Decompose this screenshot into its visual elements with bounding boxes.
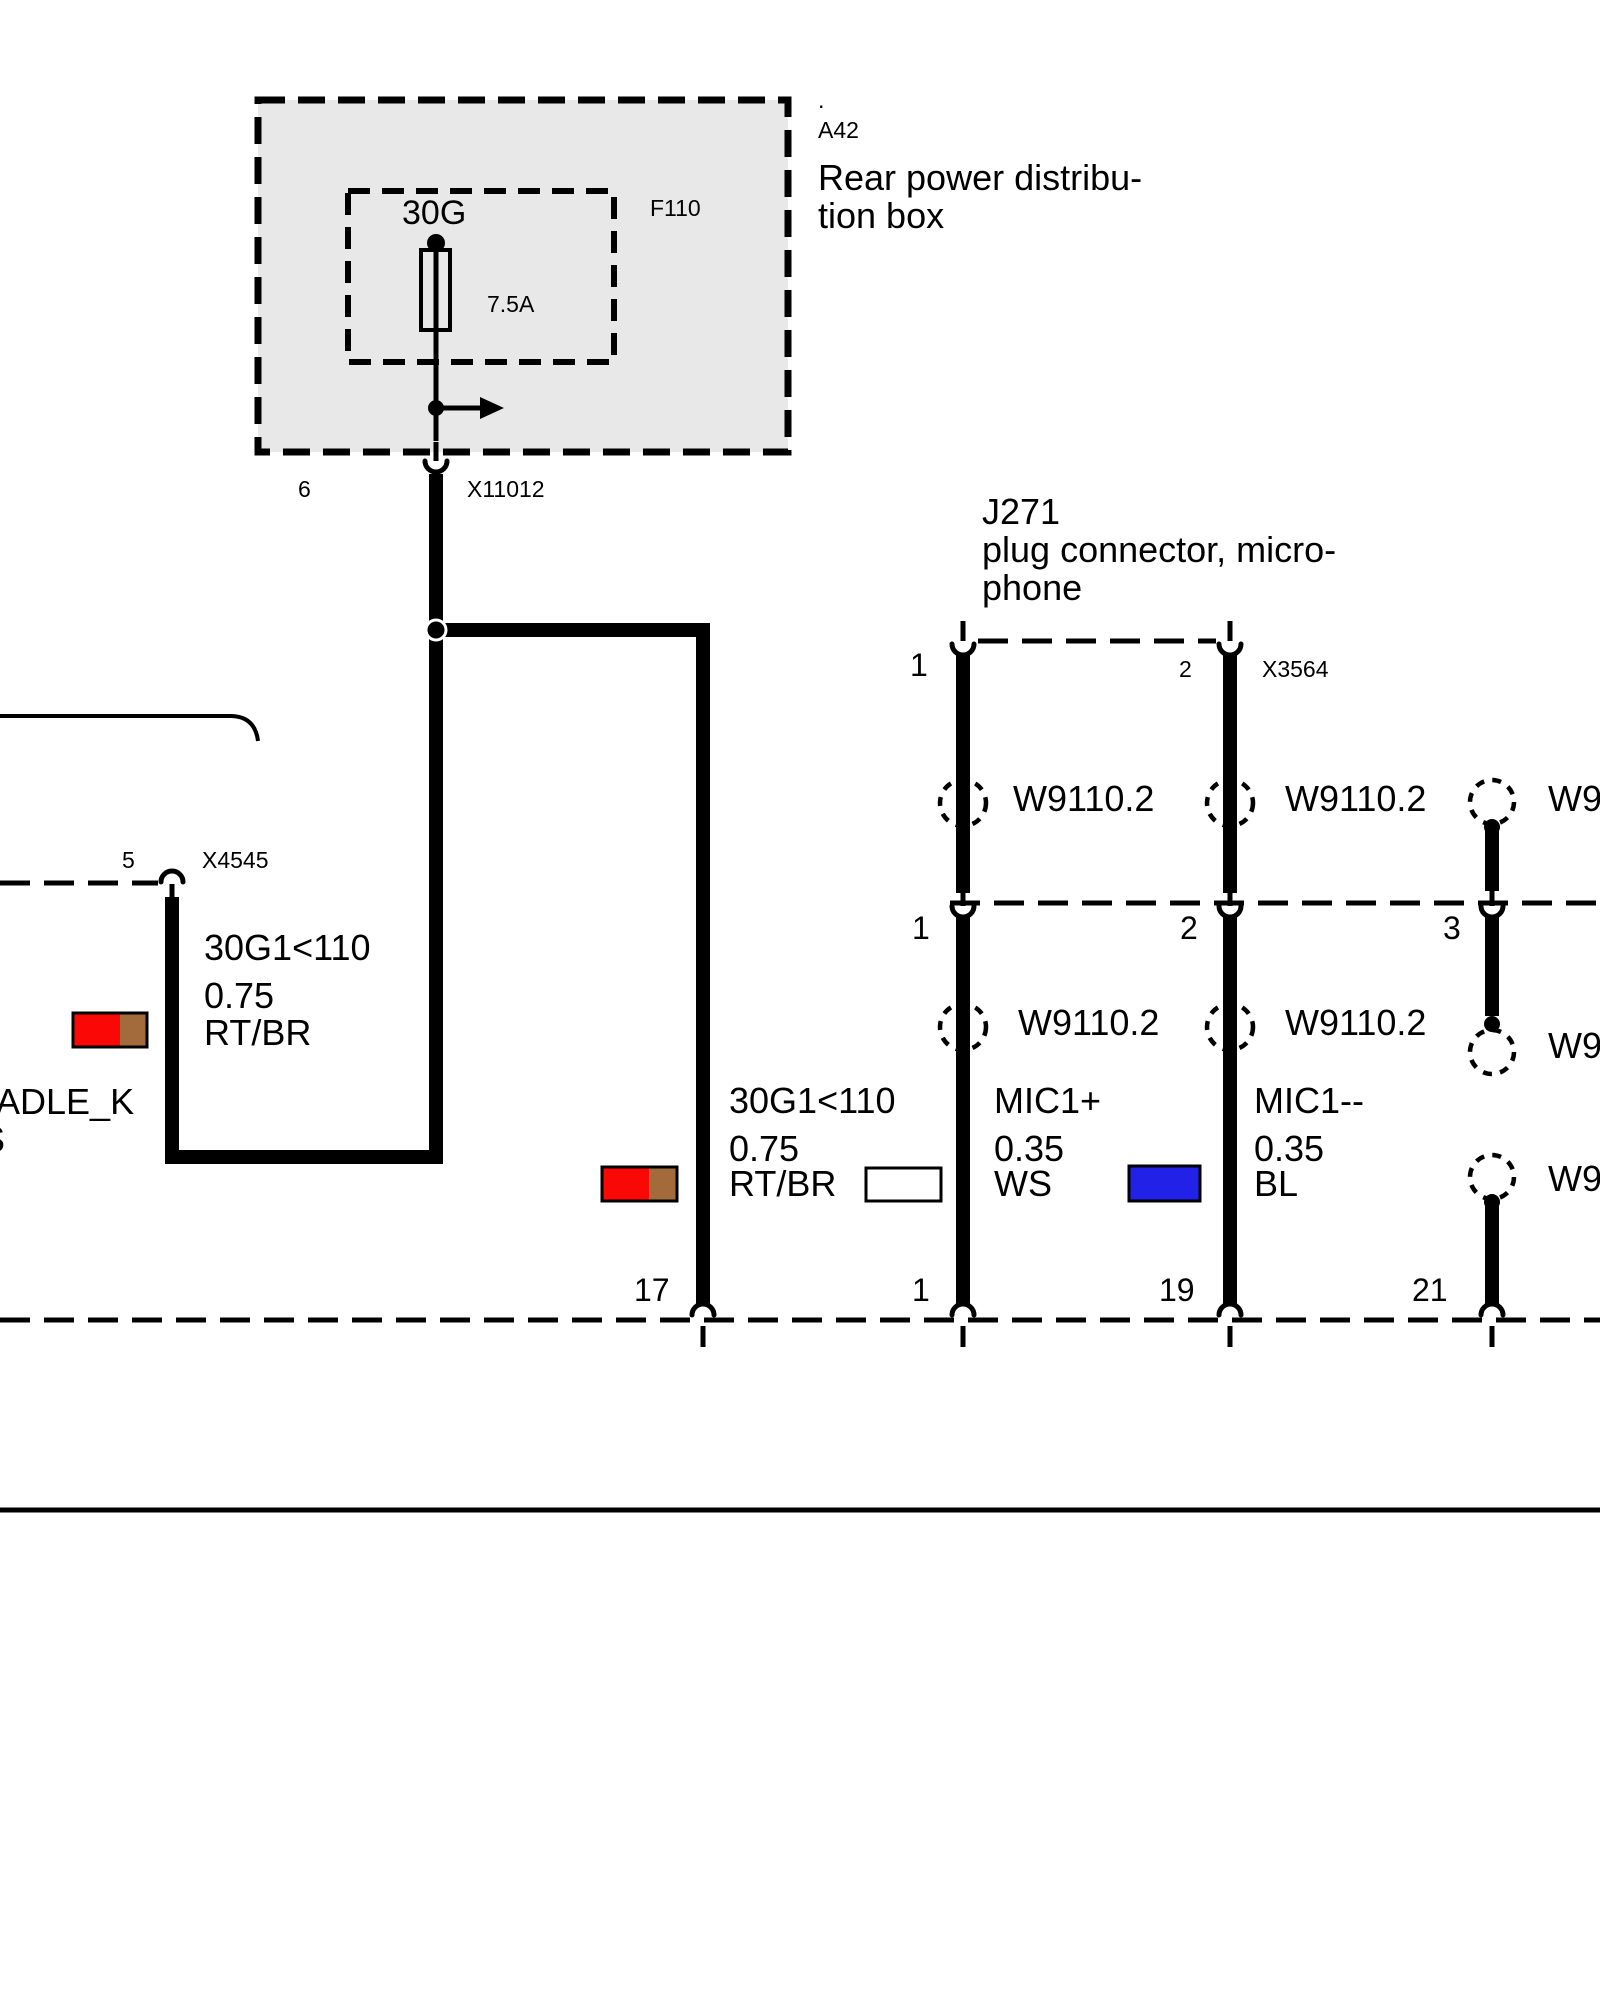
splice-circle-r1c3	[1470, 780, 1514, 824]
wire-color-swatch-bl	[1129, 1166, 1200, 1201]
wire-color-swatch-ws	[866, 1168, 941, 1201]
splice-label-r3c3: W9110.2	[1548, 1160, 1600, 1199]
mic-minus-circuit-label: MIC1--	[1254, 1082, 1364, 1121]
splice-circle-r3c3	[1470, 1155, 1514, 1199]
bottom-pin21-socket-cup	[1481, 1304, 1503, 1315]
a42-dot: .	[818, 88, 824, 113]
wire-color-swatch-feed-rt-br	[602, 1167, 677, 1201]
j271-id-label: J271	[982, 493, 1060, 532]
mic-minus-color-label: BL	[1254, 1165, 1298, 1204]
splice-label-r2c3: W9110.2	[1548, 1027, 1600, 1066]
x11012-socket-cup	[425, 461, 447, 472]
a42-id-label: A42	[818, 118, 859, 143]
branch-feed-circuit-label: 30G1<110	[729, 1082, 895, 1121]
line2-pin2-socket-cup	[1219, 906, 1241, 917]
line2-pin2-label: 2	[1180, 911, 1198, 946]
branch-left-color-label: RT/BR	[204, 1014, 311, 1053]
splice-label-r2c1: W9110.2	[1018, 1004, 1159, 1043]
line2-pin3-socket-cup	[1481, 906, 1503, 917]
device-outline-corner	[0, 716, 258, 741]
fuse-id-label: F110	[650, 196, 701, 221]
clipped-device-text-line2: S	[0, 1121, 5, 1160]
splice-label-r2c2: W9110.2	[1285, 1004, 1426, 1043]
x4545-socket-cup	[161, 871, 183, 882]
line2-pin1-label: 1	[912, 911, 930, 946]
j271-desc-line1: plug connector, micro-	[982, 531, 1336, 570]
wire-junction-dot	[426, 620, 446, 640]
j271-pin1-socket-cup	[952, 644, 974, 655]
mic-plus-color-label: WS	[994, 1165, 1052, 1204]
wiring-diagram-page: . A42 Rear power distribu- tion box 30G …	[0, 0, 1600, 2000]
power-wire-to-pin17	[436, 630, 703, 1307]
line2-pin3-label: 3	[1443, 911, 1461, 946]
x11012-pin-label: 6	[298, 477, 311, 502]
j271-pin2-label: 2	[1179, 657, 1192, 682]
a42-distribution-box-outline	[258, 100, 788, 452]
branch-left-gauge-label: 0.75	[204, 977, 274, 1016]
bottom-pin21-label: 21	[1412, 1273, 1448, 1308]
splice-label-r1c3: W9110.2	[1548, 780, 1600, 819]
bottom-pin19-socket-cup	[1219, 1304, 1241, 1315]
splice-label-r1c2: W9110.2	[1285, 780, 1426, 819]
fuse-rating-label: 7.5A	[487, 292, 534, 317]
a42-title-line1: Rear power distribu-	[818, 159, 1142, 198]
mic-plus-circuit-label: MIC1+	[994, 1082, 1101, 1121]
x4545-id-label: X4545	[202, 848, 269, 873]
x4545-pin-label: 5	[122, 848, 135, 873]
splice-circle-r2c3	[1470, 1030, 1514, 1074]
splice-label-r1c1: W9110.2	[1013, 780, 1154, 819]
terminal-30g-label: 30G	[402, 195, 466, 232]
bottom-pin19-label: 19	[1159, 1273, 1195, 1308]
j271-pin2-socket-cup	[1219, 644, 1241, 655]
bottom-pin17-socket-cup	[692, 1304, 714, 1315]
j271-desc-line2: phone	[982, 569, 1082, 608]
x11012-id-label: X11012	[467, 477, 545, 502]
a42-title-line2: tion box	[818, 197, 944, 236]
bottom-pin1-socket-cup	[952, 1304, 974, 1315]
power-wire-to-x4545	[172, 630, 436, 1157]
x3564-id-label: X3564	[1262, 657, 1329, 682]
clipped-device-text-line1: ADLE_K	[0, 1083, 134, 1122]
branch-feed-color-label: RT/BR	[729, 1165, 836, 1204]
line2-pin1-socket-cup	[952, 906, 974, 917]
bottom-pin17-label: 17	[634, 1273, 670, 1308]
bottom-pin1-label: 1	[912, 1273, 930, 1308]
wire-color-swatch-left-rt-br	[73, 1013, 147, 1047]
j271-pin1-label: 1	[910, 648, 928, 683]
branch-left-circuit-label: 30G1<110	[204, 929, 370, 968]
